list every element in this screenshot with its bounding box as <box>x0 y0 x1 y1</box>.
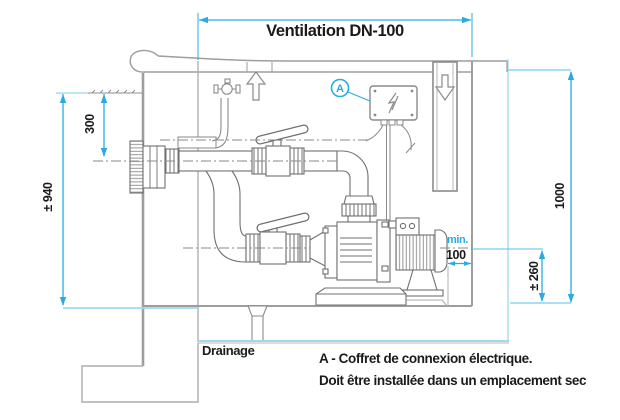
vent-duct <box>433 62 457 191</box>
pump-rear-band <box>377 220 390 282</box>
min-clearance-value: 100 <box>446 249 466 262</box>
wall-fitting <box>130 141 179 193</box>
motor-body <box>396 235 435 270</box>
note-line-2: Doit être installée dans un emplacement … <box>319 374 586 388</box>
cable-pair-to-motor <box>387 125 391 221</box>
installation-diagram: A Ventilation DN-100 ± 940 300 1000 ± 26… <box>0 0 620 420</box>
ball-valve-2 <box>246 217 305 264</box>
cable-right <box>401 125 411 150</box>
discharge-elbow <box>337 151 376 223</box>
pump-base <box>316 288 406 305</box>
marker-a-callout: A <box>332 80 371 102</box>
dim-label-260: ± 260 <box>528 261 541 290</box>
cable-gland <box>397 120 403 125</box>
dim-label-300: 300 <box>84 114 97 134</box>
motor-foot <box>407 270 437 290</box>
motor-terminal-box <box>396 218 419 235</box>
return-pipe-stub <box>178 137 216 148</box>
ventilation-title: Ventilation DN-100 <box>198 23 472 40</box>
discharge-union-nut <box>342 204 376 216</box>
dim-label-1000: 1000 <box>554 183 567 209</box>
lid-ticks <box>247 62 272 72</box>
foundation-outline <box>82 343 198 402</box>
pump <box>300 218 447 305</box>
drain-fitting <box>248 306 267 316</box>
drain-pipe <box>252 316 263 341</box>
ball-valve-1 <box>252 129 304 176</box>
drainage-label: Drainage <box>202 344 254 357</box>
up-arrow-icon <box>247 72 265 100</box>
dim-label-940: ± 940 <box>42 182 55 211</box>
petcock-icon <box>214 79 240 94</box>
cable-gland <box>381 120 387 125</box>
cable-left <box>366 125 383 141</box>
coping-bullnose <box>130 50 158 72</box>
drain <box>248 306 267 341</box>
note-line-1: A - Coffret de connexion électrique. <box>319 352 532 366</box>
marker-a-letter: A <box>336 83 344 95</box>
motor-conduit <box>389 221 396 228</box>
electrical-box <box>370 86 417 125</box>
lid-top-line <box>158 56 507 61</box>
min-label: min. <box>447 235 468 246</box>
pump-inlet-union <box>300 236 310 262</box>
pump-body <box>337 222 377 280</box>
wall-fitting-flange <box>130 141 143 193</box>
cable-gland <box>389 120 395 125</box>
cable-right-tick <box>406 143 415 153</box>
